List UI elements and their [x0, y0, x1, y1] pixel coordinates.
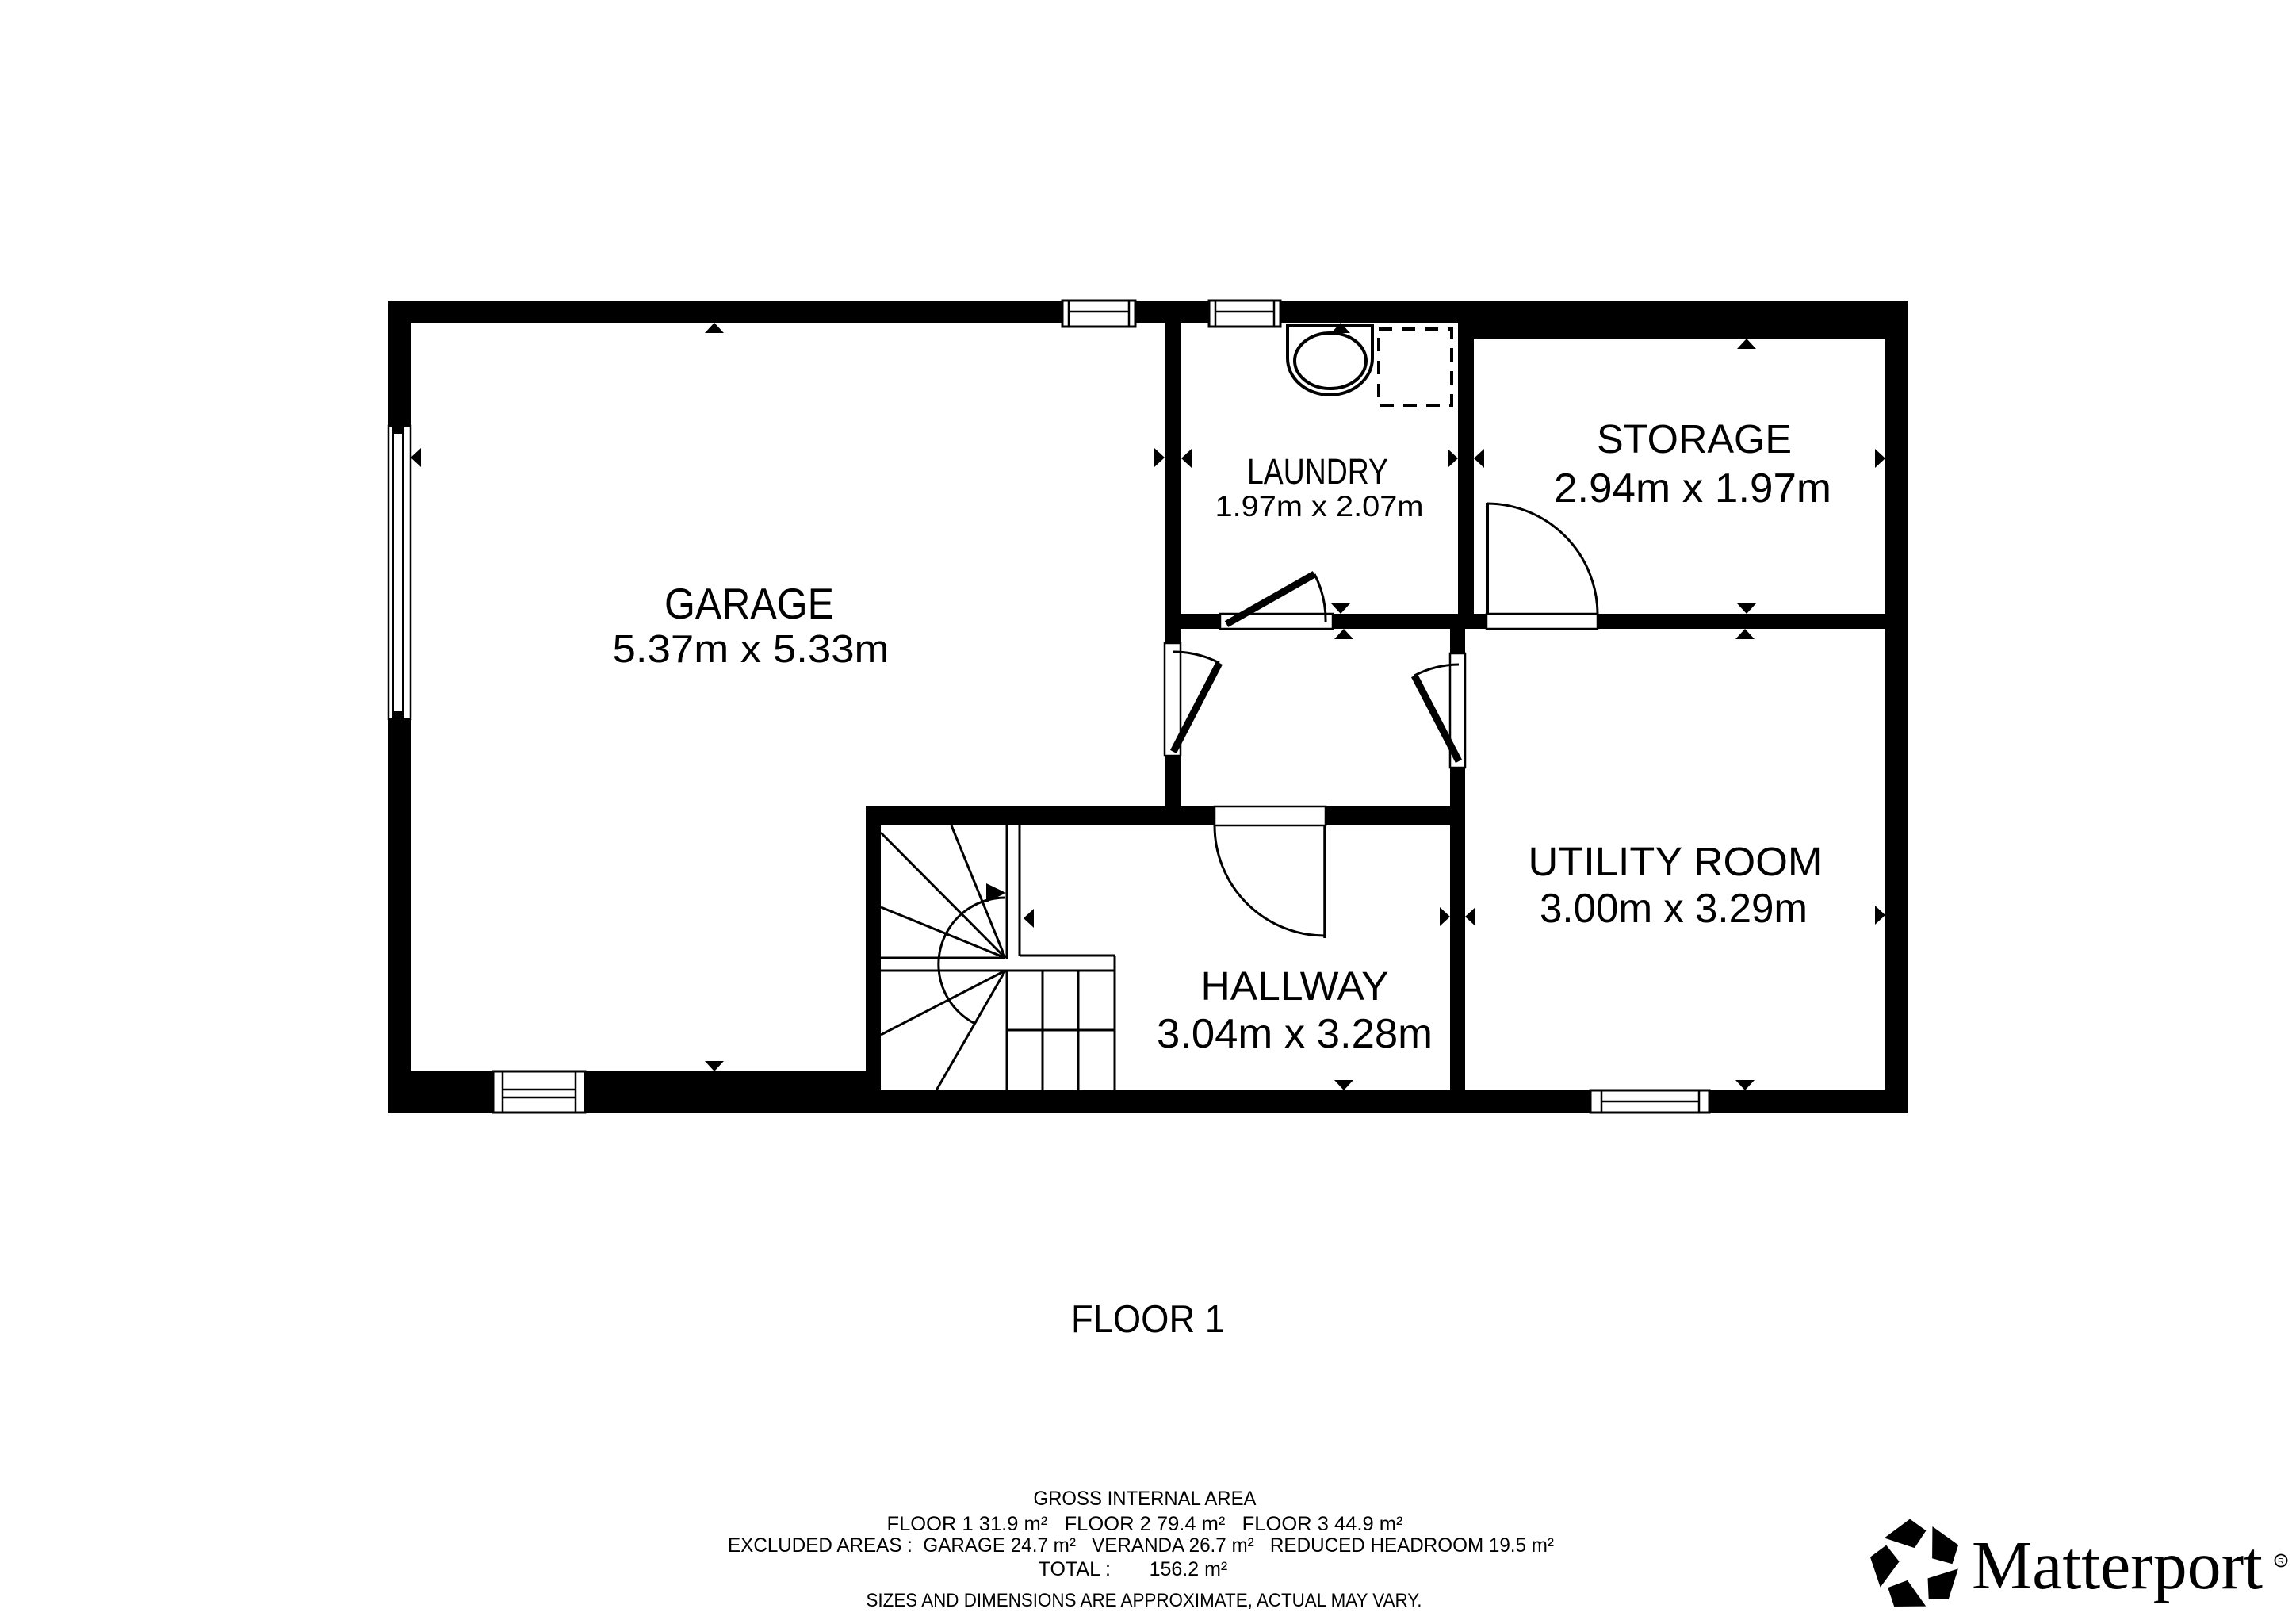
svg-text:1.97m x 2.07m: 1.97m x 2.07m: [1215, 490, 1424, 523]
svg-text:3.04m x 3.28m: 3.04m x 3.28m: [1157, 1011, 1433, 1057]
svg-text:UTILITY ROOM: UTILITY ROOM: [1529, 839, 1823, 884]
svg-text:EXCLUDED AREAS : GARAGE 24.7: EXCLUDED AREAS : GARAGE 24.7 m² VERANDA …: [728, 1534, 1554, 1557]
svg-text:Matterport: Matterport: [1972, 1526, 2263, 1603]
svg-text:2.94m x 1.97m: 2.94m x 1.97m: [1554, 465, 1831, 511]
svg-text:HALLWAY: HALLWAY: [1201, 963, 1389, 1009]
svg-text:STORAGE: STORAGE: [1597, 416, 1792, 462]
svg-text:GARAGE: GARAGE: [664, 579, 834, 628]
svg-text:GROSS INTERNAL AREA: GROSS INTERNAL AREA: [1034, 1488, 1257, 1510]
svg-text:R: R: [2278, 1557, 2284, 1567]
svg-text:FLOOR 1 31.9 m² FLOOR 2 79.4: FLOOR 1 31.9 m² FLOOR 2 79.4 m² FLOOR 3 …: [887, 1513, 1403, 1535]
svg-text:3.00m x 3.29m: 3.00m x 3.29m: [1540, 886, 1808, 932]
svg-text:FLOOR 1: FLOOR 1: [1071, 1298, 1225, 1341]
svg-text:5.37m x 5.33m: 5.37m x 5.33m: [613, 628, 890, 671]
svg-text:LAUNDRY: LAUNDRY: [1247, 451, 1388, 492]
svg-text:TOTAL : 156.2 m²: TOTAL : 156.2 m²: [1039, 1558, 1228, 1580]
svg-text:SIZES AND DIMENSIONS ARE APPRO: SIZES AND DIMENSIONS ARE APPROXIMATE, AC…: [867, 1590, 1422, 1611]
